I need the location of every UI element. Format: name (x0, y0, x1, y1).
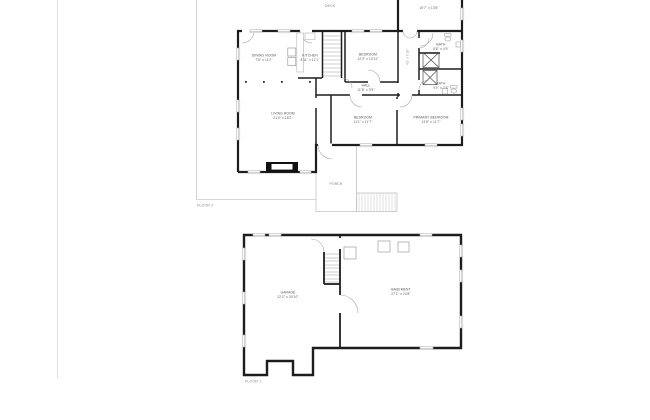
room-label-bedroom-top: BEDROOM (359, 53, 377, 57)
room-label-garage: GARAGE (280, 291, 296, 295)
room-dims-primary-bedroom: 13'8" x 11'7" (421, 120, 440, 124)
kitchen-fixtures (288, 33, 315, 72)
room-dims-bath-top: 8'8" x 4'9" (433, 47, 449, 51)
room-label-bedroom-bottom: BEDROOM (354, 116, 372, 120)
porch-steps (359, 193, 395, 212)
porch-outline (316, 146, 397, 212)
stairs-up (323, 36, 341, 76)
porch-label: PORCH (330, 182, 343, 186)
room-dims-bedroom-top: 12'3" x 10'11" (357, 57, 378, 61)
room-label-bath-mid: BATH (436, 82, 446, 86)
utility-boxes (344, 241, 409, 259)
room-dims-bedroom-bottom: 11'1" x 11'7" (354, 120, 373, 124)
floor1-plan: FLOOR 1 GARAGE 22'2" x 30'10" BASEMENT 2… (243, 234, 463, 384)
fireplace (266, 162, 298, 172)
room-label-basement: BASEMENT (391, 288, 410, 292)
floor2-window-lines (238, 8, 462, 172)
room-dims-kitchen: 8'11" x 11'1" (301, 58, 320, 62)
floorplan-page: DECK PORCH FLOOR 2 DINING ROOM 7'8" x 11… (0, 0, 650, 420)
floor2-title: FLOOR 2 (197, 204, 213, 208)
deck-label: DECK (325, 4, 336, 8)
room-dims-garage: 22'2" x 30'10" (277, 295, 298, 299)
room-label-primary-bedroom: PRIMARY BEDROOM (413, 116, 448, 120)
floor2-windows (237, 8, 464, 174)
room-label-bath-top: BATH (436, 43, 446, 47)
room-label-kitchen: KITCHEN (302, 54, 318, 58)
room-dims-closet: 4'2" x 7'10" (406, 49, 410, 65)
room-dims-upper-partial: 15'7" x 13'5" (419, 6, 438, 10)
room-dims-hall: 11'8" x 3'9" (357, 88, 374, 92)
column-markers (245, 81, 311, 83)
floor2-plan: DECK PORCH FLOOR 2 DINING ROOM 7'8" x 11… (197, 0, 464, 212)
floorplan-drawing: DECK PORCH FLOOR 2 DINING ROOM 7'8" x 11… (0, 0, 650, 420)
room-dims-dining: 7'8" x 11'2" (255, 58, 272, 62)
stairs-down (325, 254, 339, 282)
room-label-dining: DINING ROOM (252, 54, 276, 58)
room-dims-basement: 27'1" x 24'8" (391, 292, 410, 296)
floor1-interior-walls (324, 235, 340, 348)
room-dims-bath-mid: 9'0" x 7'6" (433, 86, 449, 90)
floor1-title: FLOOR 1 (245, 380, 261, 384)
room-label-living: LIVING ROOM (271, 112, 295, 116)
room-dims-living: 21'4" x 18'2" (273, 116, 292, 120)
room-label-hall: HALL (362, 84, 371, 88)
